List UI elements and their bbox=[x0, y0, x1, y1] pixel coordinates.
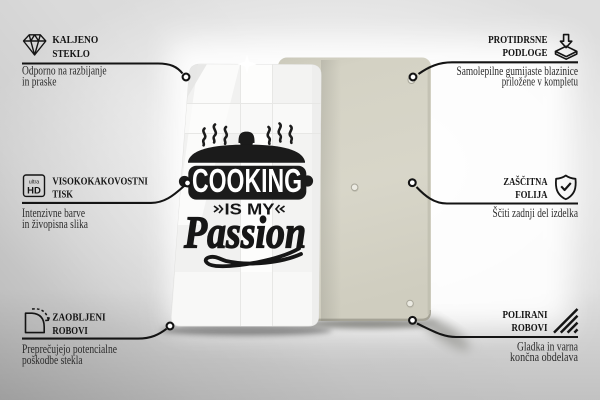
svg-text:Passion: Passion bbox=[183, 207, 306, 258]
svg-text:Ščiti zadnji del izdelka: Ščiti zadnji del izdelka bbox=[493, 206, 579, 220]
svg-text:ZAŠČITNA: ZAŠČITNA bbox=[503, 175, 547, 188]
svg-text:ZAOBLJENI: ZAOBLJENI bbox=[52, 312, 105, 324]
svg-text:POLIRANI: POLIRANI bbox=[503, 309, 548, 321]
svg-text:FOLIJA: FOLIJA bbox=[515, 189, 547, 201]
svg-text:TISK: TISK bbox=[52, 189, 73, 201]
svg-text:ROBOVI: ROBOVI bbox=[512, 322, 548, 334]
svg-text:COOKING: COOKING bbox=[192, 162, 302, 199]
svg-text:PODLOGE: PODLOGE bbox=[503, 47, 548, 59]
svg-text:KALJENO: KALJENO bbox=[52, 34, 98, 46]
svg-text:in praske: in praske bbox=[22, 75, 57, 89]
svg-text:poškodbe stekla: poškodbe stekla bbox=[22, 353, 83, 367]
svg-text:končna obdelava: končna obdelava bbox=[510, 350, 578, 364]
svg-text:PROTIDRSNE: PROTIDRSNE bbox=[488, 34, 547, 46]
svg-text:VISOKOKAKOVOSTNI: VISOKOKAKOVOSTNI bbox=[52, 176, 147, 188]
svg-text:priložene v kompletu: priložene v kompletu bbox=[502, 75, 579, 89]
svg-text:STEKLO: STEKLO bbox=[52, 48, 90, 60]
svg-text:ROBOVI: ROBOVI bbox=[52, 325, 87, 337]
svg-text:in živopisna slika: in živopisna slika bbox=[22, 217, 88, 231]
svg-text:HD: HD bbox=[27, 185, 41, 196]
